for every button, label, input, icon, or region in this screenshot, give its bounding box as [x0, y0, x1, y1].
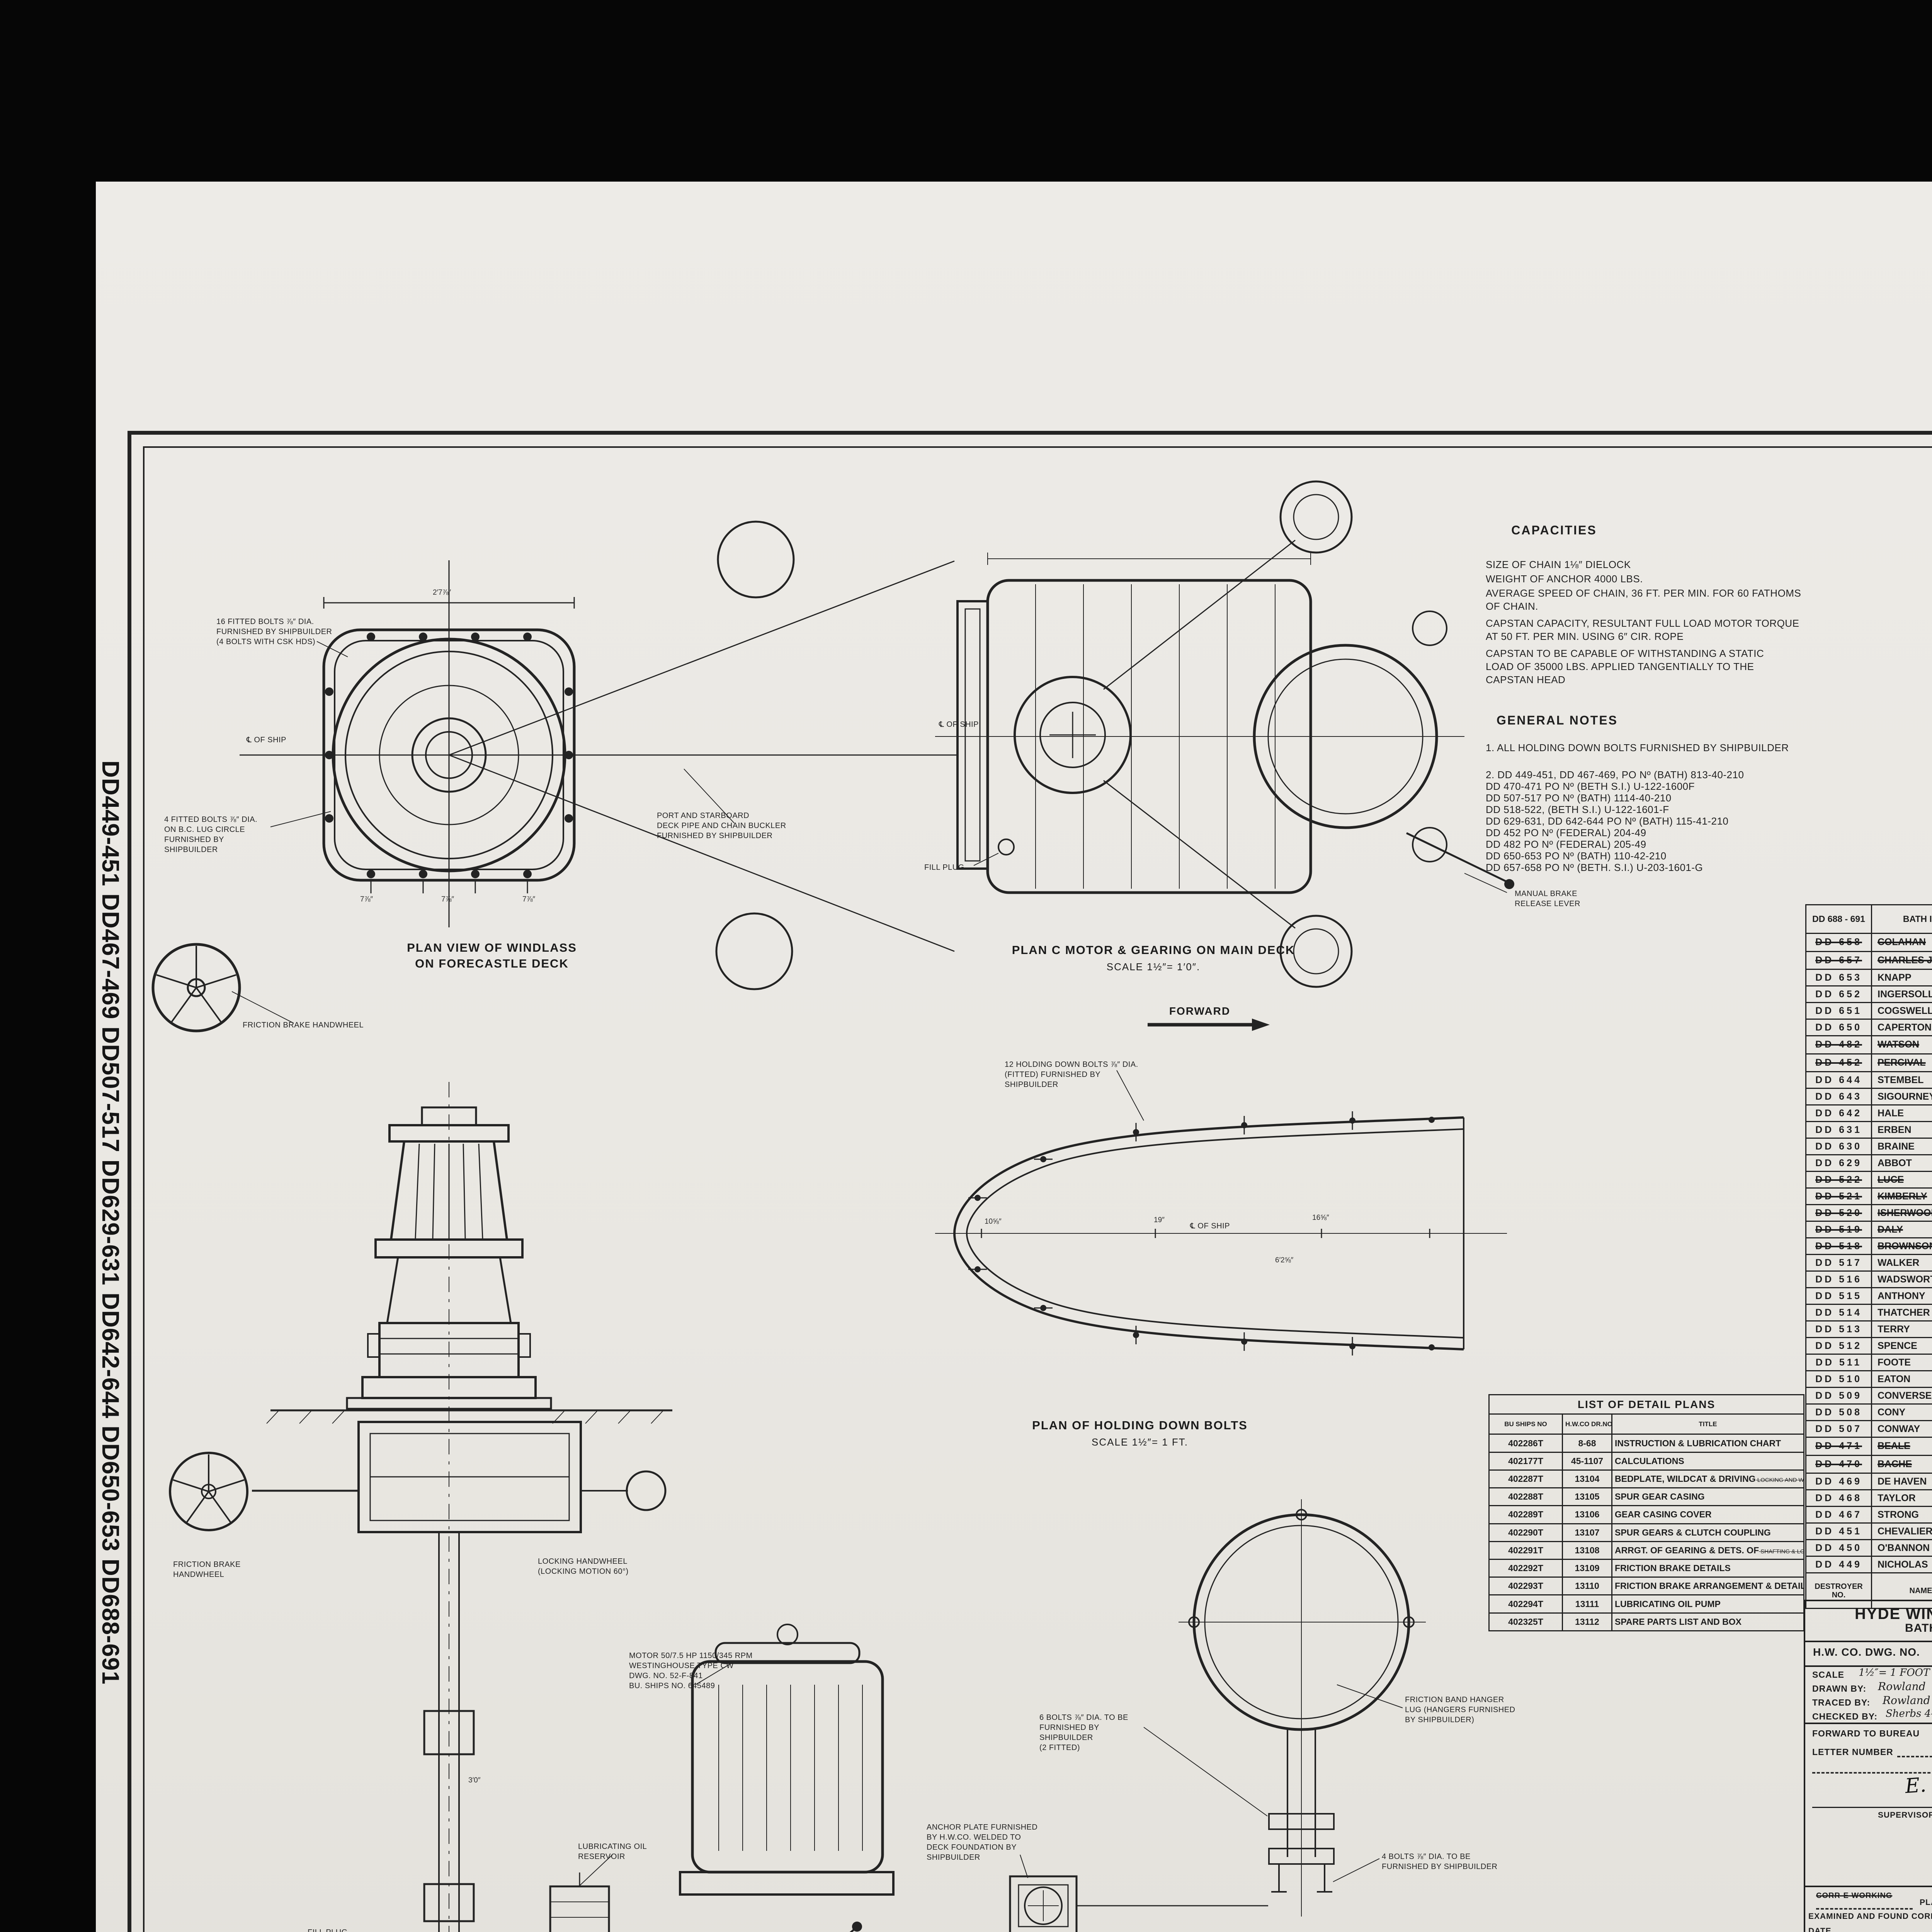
ship-row: DD 469DE HAVENBATH IRON WORKS CORP.BATH,… — [1806, 1473, 1932, 1490]
ships-table: DD 688 - 691 BATH IRON WORKS CORP'N. BAT… — [1805, 904, 1932, 1600]
letter-number-label: LETTER NUMBER — [1812, 1747, 1893, 1757]
ship-name: INGERSOLL — [1872, 986, 1932, 1003]
detail-plans-header: BU SHIPS NO — [1489, 1414, 1563, 1434]
ship-row: DD 517WALKERBATH IRON WORKS CORP.BATH, M… — [1806, 1255, 1932, 1271]
ship-row: DD 522LUCEBETH. STEEL CO. S.B. DIV.STATE… — [1806, 1172, 1932, 1188]
plan-title: SPUR GEARS & CLUTCH COUPLING — [1612, 1524, 1804, 1541]
ship-name: EATON — [1872, 1371, 1932, 1388]
ship-row: DD 470BACHE8021 — [1806, 1455, 1932, 1473]
ship-row: DD 467STRONG193 — [1806, 1507, 1932, 1523]
plan-title: FRICTION BRAKE DETAILS — [1612, 1560, 1804, 1577]
general-note-2: 2. DD 449-451, DD 467-469, PO Nº (BATH) … — [1486, 770, 1744, 780]
ship-name: SPENCE — [1872, 1338, 1932, 1354]
ship-row: DD 629ABBOT208 — [1806, 1155, 1932, 1172]
ship-dd-number: DD 514 — [1806, 1304, 1872, 1321]
examined-found-correct: EXAMINED AND FOUND CORRECT — [1808, 1911, 1932, 1922]
ship-row: DD 511FOOTE200 — [1806, 1354, 1932, 1371]
note-band-hanger: FRICTION BAND HANGERLUG (HANGERS FURNISH… — [1405, 1695, 1515, 1725]
capacities-line: SIZE OF CHAIN 1⅛″ DIELOCK — [1486, 560, 1631, 570]
ship-row: DD 652INGERSOLL217 — [1806, 986, 1932, 1003]
hwco-dr-no: 13105 — [1563, 1488, 1612, 1506]
ship-dd-number: DD 469 — [1806, 1473, 1872, 1490]
ship-dd-number: DD 452 — [1806, 1054, 1872, 1072]
dim-label: 6′2⅝″ — [1275, 1257, 1293, 1264]
ship-dd-number: DD 521 — [1806, 1188, 1872, 1205]
company-name: HYDE WINDLASS CO. — [1855, 1604, 1932, 1624]
capacities-line: OF CHAIN. — [1486, 601, 1538, 611]
ship-dd-number: DD 517 — [1806, 1255, 1872, 1271]
ship-dd-number: DD 507 — [1806, 1421, 1872, 1437]
ship-name: KNAPP — [1872, 969, 1932, 986]
ship-row: DD 658COLAHANBETH. STEEL CO., S.B. DIV.S… — [1806, 934, 1932, 952]
ship-dd-number: DD 630 — [1806, 1138, 1872, 1155]
ship-row: DD 512SPENCE201 — [1806, 1338, 1932, 1354]
ship-dd-number: DD 449 — [1806, 1556, 1872, 1573]
ship-row: DD 520ISHERWOOD8027 — [1806, 1205, 1932, 1221]
plan-title-note: LOCKING AND WINDLASS HEADS — [1756, 1477, 1804, 1483]
ship-dd-number: DD 512 — [1806, 1338, 1872, 1354]
hwco-dr-no: 13111 — [1563, 1595, 1612, 1613]
ship-row: DD 513TERRY202 — [1806, 1321, 1932, 1338]
ship-row: DD 452PERCIVAL204 — [1806, 1054, 1932, 1072]
note-4-fitted-bolts: 4 FITTED BOLTS ⅞″ DIA.ON B.C. LUG CIRCLE… — [164, 815, 257, 855]
ship-row: DD 449NICHOLAS190 — [1806, 1556, 1932, 1573]
note-friction-brake-handwheel: FRICTION BRAKE HANDWHEEL — [243, 1020, 364, 1030]
ship-name: BRAINE — [1872, 1138, 1932, 1155]
general-note-1: 1. ALL HOLDING DOWN BOLTS FURNISHED BY S… — [1486, 743, 1789, 753]
general-note-2: DD 507-517 PO Nº (BATH) 1114-40-210 — [1486, 793, 1672, 803]
detail-plan-row: 402290T13107SPUR GEARS & CLUTCH COUPLING — [1489, 1524, 1804, 1541]
general-note-2: DD 452 PO Nº (FEDERAL) 204-49 — [1486, 828, 1646, 838]
ship-name: DE HAVEN — [1872, 1473, 1932, 1490]
detail-plan-row: 402292T13109FRICTION BRAKE DETAILS — [1489, 1560, 1804, 1577]
ship-dd-number: DD 519 — [1806, 1221, 1872, 1238]
ship-row: DD 516WADSWORTH205 — [1806, 1271, 1932, 1288]
caption-forward: FORWARD — [1169, 1003, 1230, 1019]
caption-plan-c: PLAN C MOTOR & GEARING ON MAIN DECK — [1012, 942, 1295, 958]
ships-footer-row: DESTROYER NO.NAMEBUILT BYHULL NO. — [1806, 1573, 1932, 1609]
dim-label: 19″ — [1154, 1216, 1165, 1224]
note-4-bolts: 4 BOLTS ⅞″ DIA. TO BEFURNISHED BY SHIPBU… — [1382, 1852, 1497, 1872]
working-plan-struck: CORR-E WORKING — [1816, 1890, 1892, 1901]
note-lub-oil-reservoir: LUBRICATING OILRESERVOIR — [578, 1842, 647, 1862]
ship-row: DD 515ANTHONY204 — [1806, 1288, 1932, 1304]
detail-plan-row: 402289T13106GEAR CASING COVER — [1489, 1506, 1804, 1524]
detail-plan-row: 402288T13105SPUR GEAR CASING — [1489, 1488, 1804, 1506]
ship-name: STRONG — [1872, 1507, 1932, 1523]
hwco-dr-no: 13108 — [1563, 1541, 1612, 1559]
general-note-2: DD 482 PO Nº (FEDERAL) 205-49 — [1486, 839, 1646, 849]
caption-plan-c-scale: SCALE 1½″= 1′0″. — [1107, 959, 1200, 975]
ship-name: TERRY — [1872, 1321, 1932, 1338]
ship-name: STEMBEL — [1872, 1072, 1932, 1088]
hwco-dr-no: 13104 — [1563, 1470, 1612, 1488]
scanned-drawing-canvas: CAPACITIES SIZE OF CHAIN 1⅛″ DIELOCK WEI… — [0, 0, 1932, 1932]
bu-ships-no: 402325T — [1489, 1613, 1563, 1631]
ship-dd-number: DD 520 — [1806, 1205, 1872, 1221]
plan-title: CALCULATIONS — [1612, 1452, 1804, 1470]
company-city: BATH, MAINE. — [1905, 1623, 1932, 1634]
ship-name: PERCIVAL — [1872, 1054, 1932, 1072]
plan-title: SPARE PARTS LIST AND BOX — [1612, 1613, 1804, 1631]
ship-dd-number: DD 653 — [1806, 969, 1872, 986]
note-motor-spec: MOTOR 50/7.5 HP 1150/345 RPMWESTINGHOUSE… — [629, 1651, 753, 1691]
drawn-by-value: Rowland — [1878, 1680, 1926, 1693]
ships-header-dd: DD 688 - 691 — [1806, 905, 1872, 934]
general-notes-title: GENERAL NOTES — [1497, 714, 1618, 726]
ship-dd-number: DD 652 — [1806, 986, 1872, 1003]
left-margin-dd-numbers: DD449-451 DD467-469 DD507-517 DD629-631 … — [96, 760, 124, 1932]
general-note-2: DD 629-631, DD 642-644 PO Nº (BATH) 115-… — [1486, 816, 1728, 826]
plan-word: PLAN — [1920, 1897, 1932, 1908]
ship-name: HALE — [1872, 1105, 1932, 1122]
ship-name: CONY — [1872, 1404, 1932, 1421]
general-note-2: DD 657-658 PO Nº (BETH. S.I.) U-203-1601… — [1486, 862, 1703, 872]
note-12-holding-bolts: 12 HOLDING DOWN BOLTS ⅞″ DIA.(FITTED) FU… — [1005, 1060, 1138, 1090]
ship-row: DD 468TAYLOR194 — [1806, 1490, 1932, 1507]
ship-row: DD 482WATSONFEDERAL S.B. & D.D. CO.KEARN… — [1806, 1036, 1932, 1054]
drawn-by-label: DRAWN BY: — [1812, 1683, 1866, 1694]
hwco-dr-no: 13107 — [1563, 1524, 1612, 1541]
ship-name: SIGOURNEY — [1872, 1088, 1932, 1105]
ship-dd-number: DD 509 — [1806, 1388, 1872, 1404]
bu-ships-no: 402291T — [1489, 1541, 1563, 1559]
plan-title: BEDPLATE, WILDCAT & DRIVING LOCKING AND … — [1612, 1470, 1804, 1488]
ship-row: DD 519DALY8026 — [1806, 1221, 1932, 1238]
ship-row: DD 643SIGOURNEY212 — [1806, 1088, 1932, 1105]
ship-name: WADSWORTH — [1872, 1271, 1932, 1288]
scale-label: SCALE — [1812, 1669, 1844, 1680]
ship-row: DD 642HALE211 — [1806, 1105, 1932, 1122]
bu-ships-no: 402287T — [1489, 1470, 1563, 1488]
note-cl-of-ship: ℄ OF SHIP — [939, 719, 979, 730]
note-anchor-plate: ANCHOR PLATE FURNISHEDBY H.W.CO. WELDED … — [927, 1822, 1037, 1862]
note-fill-plug-elev: FILL PLUG — [308, 1927, 348, 1932]
capacities-line: AVERAGE SPEED OF CHAIN, 36 FT. PER MIN. … — [1486, 588, 1801, 598]
detail-plans-title: LIST OF DETAIL PLANS — [1489, 1395, 1804, 1414]
ship-name: WATSON — [1872, 1036, 1932, 1054]
ship-dd-number: DD 467 — [1806, 1507, 1872, 1523]
hwco-dr-no: 8-68 — [1563, 1434, 1612, 1452]
ship-name: O'BANNON — [1872, 1540, 1932, 1556]
note-6-bolts: 6 BOLTS ⅞″ DIA. TO BEFURNISHED BYSHIPBUI… — [1039, 1713, 1128, 1753]
note-fill-plug: FILL PLUG — [924, 862, 964, 872]
plan-title: INSTRUCTION & LUBRICATION CHART — [1612, 1434, 1804, 1452]
plan-title: SPUR GEAR CASING — [1612, 1488, 1804, 1506]
supervisor-line-1: SUPERVISOR OF SHIPBUILDING U.S.N — [1878, 1810, 1932, 1821]
dim-label: 7⅞″ — [360, 896, 373, 903]
ship-dd-number: DD 651 — [1806, 1003, 1872, 1019]
scale-value: 1½″= 1 FOOT — [1859, 1667, 1930, 1679]
ship-row: DD 630BRAINE209 — [1806, 1138, 1932, 1155]
ship-dd-number: DD 629 — [1806, 1155, 1872, 1172]
drawing-linework — [0, 0, 1932, 1932]
ships-footer-label: DESTROYER NO. — [1806, 1573, 1872, 1609]
dim-label: 10⅝″ — [985, 1218, 1002, 1225]
ship-name: TAYLOR — [1872, 1490, 1932, 1507]
ship-row: DD 471BEALEBETH STEEL CO. S.B.DIV.STATEN… — [1806, 1437, 1932, 1456]
detail-plan-row: 402291T13108ARRGT. OF GEARING & DETS. OF… — [1489, 1541, 1804, 1559]
note-deck-pipe: PORT AND STARBOARDDECK PIPE AND CHAIN BU… — [657, 811, 786, 841]
checked-by-value: Sherbs 4-30-41 — [1886, 1708, 1932, 1719]
general-note-2: DD 518-522, (BETH S.I.) U-122-1601-F — [1486, 804, 1669, 815]
ship-name: CHARLES J. BADGER — [1872, 951, 1932, 969]
general-note-2: DD 470-471 PO Nº (BETH S.I.) U-122-1600F — [1486, 781, 1695, 791]
dim-label: 2′7⅞″ — [433, 589, 451, 596]
note-cl-of-ship: ℄ OF SHIP — [1190, 1221, 1230, 1231]
ship-name: CONWAY — [1872, 1421, 1932, 1437]
plan-title: ARRGT. OF GEARING & DETS. OF SHAFTING & … — [1612, 1541, 1804, 1559]
ship-row: DD 653KNAPPBATH IRON WORKS CORP.BATH, MA… — [1806, 969, 1932, 986]
ship-name: ERBEN — [1872, 1122, 1932, 1138]
ship-dd-number: DD 631 — [1806, 1122, 1872, 1138]
ship-name: ISHERWOOD — [1872, 1205, 1932, 1221]
bu-ships-no: 402293T — [1489, 1577, 1563, 1595]
ship-dd-number: DD 515 — [1806, 1288, 1872, 1304]
detail-plan-row: 402294T13111LUBRICATING OIL PUMP — [1489, 1595, 1804, 1613]
ship-row: DD 521KIMBERLY8028 — [1806, 1188, 1932, 1205]
dim-label: 7⅞″ — [441, 896, 454, 903]
ship-dd-number: DD 450 — [1806, 1540, 1872, 1556]
ship-name: KIMBERLY — [1872, 1188, 1932, 1205]
ship-dd-number: DD 451 — [1806, 1523, 1872, 1540]
ship-name: WALKER — [1872, 1255, 1932, 1271]
ship-name: BROWNSON — [1872, 1238, 1932, 1255]
date2-label: DATE — [1808, 1926, 1832, 1932]
capacities-line: CAPSTAN TO BE CAPABLE OF WITHSTANDING A … — [1486, 648, 1764, 658]
ship-row: DD 514THATCHER203 — [1806, 1304, 1932, 1321]
ship-name: CONVERSE — [1872, 1388, 1932, 1404]
note-friction-brake-handwheel-elev: FRICTION BRAKEHANDWHEEL — [173, 1560, 241, 1580]
ship-dd-number: DD 642 — [1806, 1105, 1872, 1122]
note-16-fitted-bolts: 16 FITTED BOLTS ⅞″ DIA.FURNISHED BY SHIP… — [216, 617, 332, 647]
ship-dd-number: DD 644 — [1806, 1072, 1872, 1088]
checked-by-label: CHECKED BY: — [1812, 1711, 1878, 1722]
bu-ships-no: 402288T — [1489, 1488, 1563, 1506]
bu-ships-no: 402177T — [1489, 1452, 1563, 1470]
ship-dd-number: DD 513 — [1806, 1321, 1872, 1338]
detail-plan-row: 402287T13104BEDPLATE, WILDCAT & DRIVING … — [1489, 1470, 1804, 1488]
hwco-dr-no: 13106 — [1563, 1506, 1612, 1524]
detail-plans-header: H.W.CO DR.NO — [1563, 1414, 1612, 1434]
capacities-line: LOAD OF 35000 LBS. APPLIED TANGENTIALLY … — [1486, 662, 1754, 672]
ships-footer-label: NAME — [1872, 1573, 1932, 1609]
ship-name: BEALE — [1872, 1437, 1932, 1456]
hwco-dr-no: 13109 — [1563, 1560, 1612, 1577]
ship-name: COGSWELL — [1872, 1003, 1932, 1019]
ship-name: CAPERTON — [1872, 1019, 1932, 1036]
ship-row: DD 510EATON199 — [1806, 1371, 1932, 1388]
ship-row: DD 509CONVERSE198 — [1806, 1388, 1932, 1404]
detail-plans-table: LIST OF DETAIL PLANS BU SHIPS NO H.W.CO … — [1488, 1394, 1804, 1631]
caption-plan-view: PLAN VIEW OF WINDLASSON FORECASTLE DECK — [407, 940, 577, 971]
ship-row: DD 644STEMBELBATH IRON WORKS CORP.BATH, … — [1806, 1072, 1932, 1088]
plan-title: FRICTION BRAKE ARRANGEMENT & DETAILS — [1612, 1577, 1804, 1595]
hwco-dr-no: 13112 — [1563, 1613, 1612, 1631]
ship-row: DD 507CONWAY196 — [1806, 1421, 1932, 1437]
ship-name: THATCHER — [1872, 1304, 1932, 1321]
ship-dd-number: DD 516 — [1806, 1271, 1872, 1288]
bu-ships-no: 402294T — [1489, 1595, 1563, 1613]
dwg-no-label: H.W. CO. DWG. NO. — [1813, 1647, 1920, 1658]
plan-title: LUBRICATING OIL PUMP — [1612, 1595, 1804, 1613]
ship-dd-number: DD 658 — [1806, 934, 1872, 952]
bu-ships-no: 402289T — [1489, 1506, 1563, 1524]
ship-dd-number: DD 650 — [1806, 1019, 1872, 1036]
ship-row: DD 651COGSWELL216 — [1806, 1003, 1932, 1019]
dim-label: 16⅝″ — [1312, 1214, 1329, 1221]
ship-row: DD 451CHEVALIER192 — [1806, 1523, 1932, 1540]
note-cl-of-ship: ℄ OF SHIP — [247, 735, 286, 745]
ship-dd-number: DD 522 — [1806, 1172, 1872, 1188]
ship-name: CHEVALIER — [1872, 1523, 1932, 1540]
ship-name: NICHOLAS — [1872, 1556, 1932, 1573]
ship-dd-number: DD 518 — [1806, 1238, 1872, 1255]
ship-dd-number: DD 510 — [1806, 1371, 1872, 1388]
bu-ships-no: 402292T — [1489, 1560, 1563, 1577]
ship-row: DD 657CHARLES J. BADGER8036 — [1806, 951, 1932, 969]
ship-name: ANTHONY — [1872, 1288, 1932, 1304]
ship-dd-number: DD 643 — [1806, 1088, 1872, 1105]
ship-dd-number: DD 657 — [1806, 951, 1872, 969]
detail-plan-row: 402177T45-1107CALCULATIONS — [1489, 1452, 1804, 1470]
capacities-title: CAPACITIES — [1511, 524, 1597, 536]
general-note-2: DD 650-653 PO Nº (BATH) 110-42-210 — [1486, 851, 1667, 861]
ship-row: DD 518BROWNSON8025 — [1806, 1238, 1932, 1255]
caption-holding-bolts-scale: SCALE 1½″= 1 FT. — [1092, 1434, 1188, 1450]
hwco-dr-no: 13110 — [1563, 1577, 1612, 1595]
bu-ships-no: 402290T — [1489, 1524, 1563, 1541]
ship-name: FOOTE — [1872, 1354, 1932, 1371]
ships-header-builder: BATH IRON WORKS CORP'N. BATH, MAINE — [1872, 905, 1932, 934]
bu-ships-no: 402286T — [1489, 1434, 1563, 1452]
ship-row: DD 631ERBEN210 — [1806, 1122, 1932, 1138]
ship-dd-number: DD 511 — [1806, 1354, 1872, 1371]
ship-name: DALY — [1872, 1221, 1932, 1238]
detail-plan-row: 402286T8-68INSTRUCTION & LUBRICATION CHA… — [1489, 1434, 1804, 1452]
traced-by-label: TRACED BY: — [1812, 1697, 1870, 1708]
dim-label: 3′0″ — [468, 1777, 480, 1784]
plan-title: GEAR CASING COVER — [1612, 1506, 1804, 1524]
ship-name: COLAHAN — [1872, 934, 1932, 952]
ship-row: DD 508CONY197 — [1806, 1404, 1932, 1421]
caption-holding-bolts: PLAN OF HOLDING DOWN BOLTS — [1032, 1417, 1248, 1433]
ship-dd-number: DD 508 — [1806, 1404, 1872, 1421]
plan-title-note: SHAFTING & LOCKING HANDWHEEL — [1759, 1548, 1804, 1555]
ship-dd-number: DD 470 — [1806, 1455, 1872, 1473]
ship-name: ABBOT — [1872, 1155, 1932, 1172]
ship-row: DD 450O'BANNON191 — [1806, 1540, 1932, 1556]
note-manual-brake-lever: MANUAL BRAKERELEASE LEVER — [1515, 889, 1580, 909]
detail-plans-header: TITLE — [1612, 1414, 1804, 1434]
ship-name: BACHE — [1872, 1455, 1932, 1473]
ship-dd-number: DD 471 — [1806, 1437, 1872, 1456]
capacities-line: CAPSTAN HEAD — [1486, 675, 1565, 685]
capacities-line: AT 50 FT. PER MIN. USING 6″ CIR. ROPE — [1486, 631, 1684, 641]
detail-plan-row: 402293T13110FRICTION BRAKE ARRANGEMENT &… — [1489, 1577, 1804, 1595]
ship-row: DD 650CAPERTON215 — [1806, 1019, 1932, 1036]
hwco-dr-no: 45-1107 — [1563, 1452, 1612, 1470]
ship-dd-number: DD 482 — [1806, 1036, 1872, 1054]
capacities-line: CAPSTAN CAPACITY, RESULTANT FULL LOAD MO… — [1486, 618, 1799, 628]
ship-name: LUCE — [1872, 1172, 1932, 1188]
dim-label: 7⅞″ — [522, 896, 535, 903]
ship-dd-number: DD 468 — [1806, 1490, 1872, 1507]
forward-bureau-label: FORWARD TO BUREAU — [1812, 1728, 1920, 1739]
note-locking-handwheel: LOCKING HANDWHEEL(LOCKING MOTION 60°) — [538, 1556, 629, 1577]
detail-plan-row: 402325T13112SPARE PARTS LIST AND BOX — [1489, 1613, 1804, 1631]
capacities-line: WEIGHT OF ANCHOR 4000 LBS. — [1486, 574, 1643, 584]
traced-by-value: Rowland — [1883, 1694, 1930, 1707]
